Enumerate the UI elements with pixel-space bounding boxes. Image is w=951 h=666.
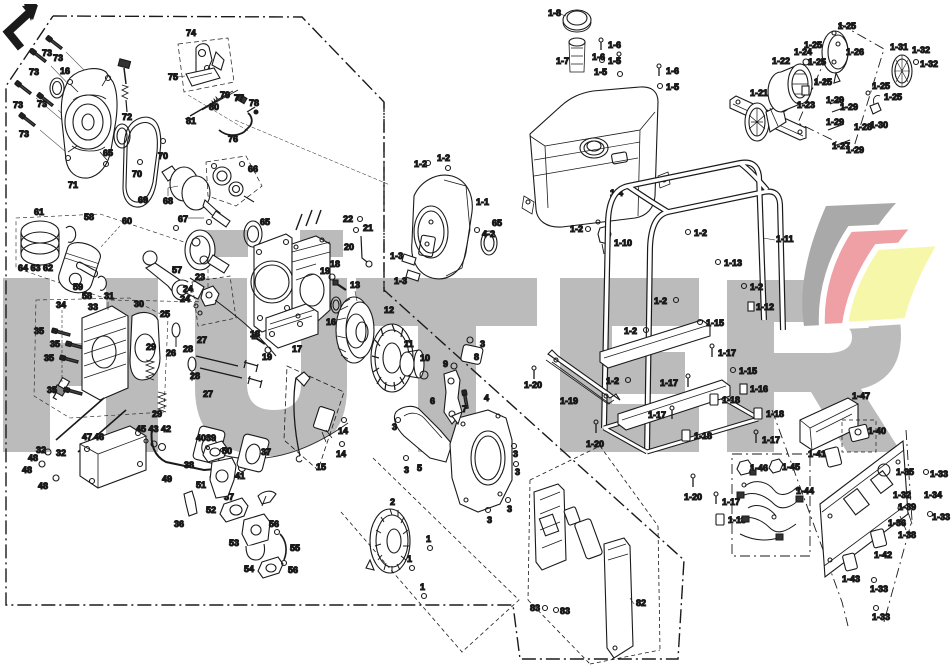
svg-text:1-2: 1-2 [750,282,763,292]
svg-text:1-33: 1-33 [930,469,948,479]
svg-text:39: 39 [206,433,216,443]
svg-text:1-27: 1-27 [832,141,850,151]
svg-text:28: 28 [190,371,200,381]
svg-text:1: 1 [426,534,431,544]
svg-text:25: 25 [160,309,170,319]
svg-text:35: 35 [50,339,60,349]
svg-text:57: 57 [172,265,182,275]
svg-text:30: 30 [134,299,144,309]
svg-text:8: 8 [474,352,479,362]
svg-text:78: 78 [249,98,259,108]
svg-text:27: 27 [197,335,207,345]
svg-text:12: 12 [384,305,394,315]
svg-text:16: 16 [326,317,336,327]
svg-text:1-20: 1-20 [684,492,702,502]
svg-text:27: 27 [203,389,213,399]
svg-text:7: 7 [462,404,467,414]
svg-text:3: 3 [392,422,397,432]
svg-text:1: 1 [407,554,412,564]
svg-text:19: 19 [262,352,272,362]
svg-text:4-2: 4-2 [482,229,495,239]
svg-text:1-3: 1-3 [394,276,407,286]
svg-text:15: 15 [316,462,326,472]
svg-text:1-45: 1-45 [782,462,800,472]
svg-text:1-25: 1-25 [872,81,890,91]
svg-text:64 63 62: 64 63 62 [18,263,53,273]
svg-text:1-12: 1-12 [756,302,774,312]
svg-text:6: 6 [430,396,435,406]
svg-text:1-6: 1-6 [608,40,621,50]
svg-text:82: 82 [636,598,646,608]
svg-text:65: 65 [260,217,270,227]
svg-text:1-17: 1-17 [660,378,678,388]
svg-text:1-20: 1-20 [524,380,542,390]
svg-text:49: 49 [162,474,172,484]
svg-text:67: 67 [178,214,188,224]
svg-text:1-3: 1-3 [390,251,403,261]
svg-text:33: 33 [88,302,98,312]
svg-text:1-38: 1-38 [898,530,916,540]
svg-text:1-42: 1-42 [874,550,892,560]
svg-text:68: 68 [163,196,173,206]
svg-text:70: 70 [158,151,168,161]
svg-text:55: 55 [290,543,300,553]
svg-text:1-29: 1-29 [840,102,858,112]
svg-text:13: 13 [350,280,360,290]
svg-text:1-32: 1-32 [893,490,911,500]
svg-text:37: 37 [261,447,271,457]
svg-text:1-17: 1-17 [718,348,736,358]
svg-text:1: 1 [420,582,425,592]
svg-text:4: 4 [484,393,489,403]
svg-text:50: 50 [222,446,232,456]
svg-text:18: 18 [250,329,260,339]
svg-text:60: 60 [122,216,132,226]
svg-text:3: 3 [487,515,492,525]
svg-text:1-32: 1-32 [920,59,938,69]
svg-text:1-2: 1-2 [606,376,619,386]
svg-text:1-17: 1-17 [762,435,780,445]
svg-text:72: 72 [122,112,132,122]
svg-text:1-19: 1-19 [560,396,578,406]
svg-text:79: 79 [220,90,230,100]
svg-text:1-26: 1-26 [846,47,864,57]
svg-text:29: 29 [152,409,162,419]
svg-text:46: 46 [94,432,104,442]
svg-text:28: 28 [183,344,193,354]
svg-text:1-39: 1-39 [898,502,916,512]
svg-text:58: 58 [82,291,92,301]
svg-text:1-44: 1-44 [796,486,814,496]
svg-text:1-33: 1-33 [870,584,888,594]
svg-text:1-11: 1-11 [776,234,794,244]
svg-text:70: 70 [132,169,142,179]
svg-text:56: 56 [269,519,279,529]
svg-text:35: 35 [44,353,54,363]
svg-text:29: 29 [146,342,156,352]
svg-text:1-5: 1-5 [594,67,607,77]
svg-text:1-33: 1-33 [872,612,890,622]
svg-text:1-21: 1-21 [750,88,768,98]
svg-text:3: 3 [507,504,512,514]
svg-text:65: 65 [103,148,113,158]
svg-text:1-43: 1-43 [842,574,860,584]
svg-text:58: 58 [84,212,94,222]
svg-text:11: 11 [404,339,414,349]
svg-text:16: 16 [60,66,70,76]
svg-text:52: 52 [206,505,216,515]
svg-text:73: 73 [53,53,63,63]
svg-text:3: 3 [513,449,518,459]
svg-text:73: 73 [13,100,23,110]
svg-text:1-6: 1-6 [592,52,605,62]
svg-text:21: 21 [363,223,373,233]
svg-text:74: 74 [186,28,196,38]
svg-text:83: 83 [560,606,570,616]
svg-text:75: 75 [168,72,178,82]
svg-text:1-23: 1-23 [797,100,815,110]
svg-text:17: 17 [292,344,302,354]
svg-text:10: 10 [420,353,430,363]
svg-text:35: 35 [47,385,57,395]
svg-text:1-18: 1-18 [694,431,712,441]
svg-text:1-30: 1-30 [870,120,888,130]
svg-text:22: 22 [343,214,353,224]
svg-text:1-13: 1-13 [724,258,742,268]
svg-text:1-2: 1-2 [414,159,427,169]
svg-text:1-2: 1-2 [624,326,637,336]
svg-text:1-31: 1-31 [890,42,908,52]
svg-text:1-2: 1-2 [654,296,667,306]
svg-text:1-40: 1-40 [868,426,886,436]
svg-text:1-15: 1-15 [739,366,757,376]
svg-text:48: 48 [38,481,48,491]
svg-text:48: 48 [22,465,32,475]
svg-text:1-22: 1-22 [772,56,790,66]
svg-text:1-5: 1-5 [666,82,679,92]
svg-text:14: 14 [336,449,346,459]
svg-text:56: 56 [288,565,298,575]
svg-text:1-2: 1-2 [437,153,450,163]
svg-text:26: 26 [166,348,176,358]
svg-text:3: 3 [515,467,520,477]
svg-text:65: 65 [492,218,502,228]
svg-text:32: 32 [56,448,66,458]
svg-text:1-2: 1-2 [570,224,583,234]
svg-text:1-25: 1-25 [804,40,822,50]
svg-text:45 43 42: 45 43 42 [136,424,171,434]
svg-text:1-25: 1-25 [884,92,902,102]
svg-text:61: 61 [34,207,44,217]
svg-text:54: 54 [244,564,254,574]
svg-text:53: 53 [229,538,239,548]
svg-text:20: 20 [344,242,354,252]
svg-text:18: 18 [330,259,340,269]
svg-text:73: 73 [29,67,39,77]
svg-text:81: 81 [186,116,196,126]
svg-text:1-1: 1-1 [476,197,489,207]
svg-text:1-25: 1-25 [808,57,826,67]
svg-text:51: 51 [196,480,206,490]
svg-text:1-25: 1-25 [814,77,832,87]
svg-text:1-47: 1-47 [852,391,870,401]
svg-text:5: 5 [417,463,422,473]
svg-text:1-7: 1-7 [556,56,569,66]
svg-text:1-33: 1-33 [932,512,950,522]
svg-text:23: 23 [195,272,205,282]
svg-text:1-34: 1-34 [924,490,942,500]
svg-text:34: 34 [56,300,66,310]
svg-text:1-10: 1-10 [614,238,632,248]
svg-text:3: 3 [404,465,409,475]
svg-text:73: 73 [42,48,52,58]
svg-text:69: 69 [138,195,148,205]
svg-text:24: 24 [183,284,193,294]
svg-text:1-29: 1-29 [826,117,844,127]
svg-text:1-25: 1-25 [838,21,856,31]
svg-text:47: 47 [82,432,92,442]
svg-text:38: 38 [184,460,194,470]
svg-text:1-35: 1-35 [896,467,914,477]
svg-text:1-8: 1-8 [548,8,561,18]
svg-text:66: 66 [248,164,258,174]
svg-text:1-2: 1-2 [694,228,707,238]
svg-text:1-32: 1-32 [912,45,930,55]
svg-text:2: 2 [390,497,395,507]
svg-text:76: 76 [228,134,238,144]
svg-text:1-41: 1-41 [808,449,826,459]
svg-text:83: 83 [530,603,540,613]
svg-text:40: 40 [196,433,206,443]
svg-text:73: 73 [37,99,47,109]
svg-text:24: 24 [180,294,190,304]
svg-text:73: 73 [19,129,29,139]
svg-text:1-17: 1-17 [648,410,666,420]
svg-text:3: 3 [480,339,485,349]
svg-text:36: 36 [174,519,184,529]
svg-text:31: 31 [104,291,114,301]
svg-text:77: 77 [234,93,244,103]
svg-text:35: 35 [34,326,44,336]
svg-text:1-18: 1-18 [722,395,740,405]
svg-text:1-15: 1-15 [706,318,724,328]
svg-text:9: 9 [443,359,448,369]
svg-text:14: 14 [338,426,348,436]
svg-text:48: 48 [28,453,38,463]
svg-text:1-6: 1-6 [666,66,679,76]
svg-text:19: 19 [320,266,330,276]
svg-text:71: 71 [68,180,78,190]
svg-text:1-16: 1-16 [750,384,768,394]
